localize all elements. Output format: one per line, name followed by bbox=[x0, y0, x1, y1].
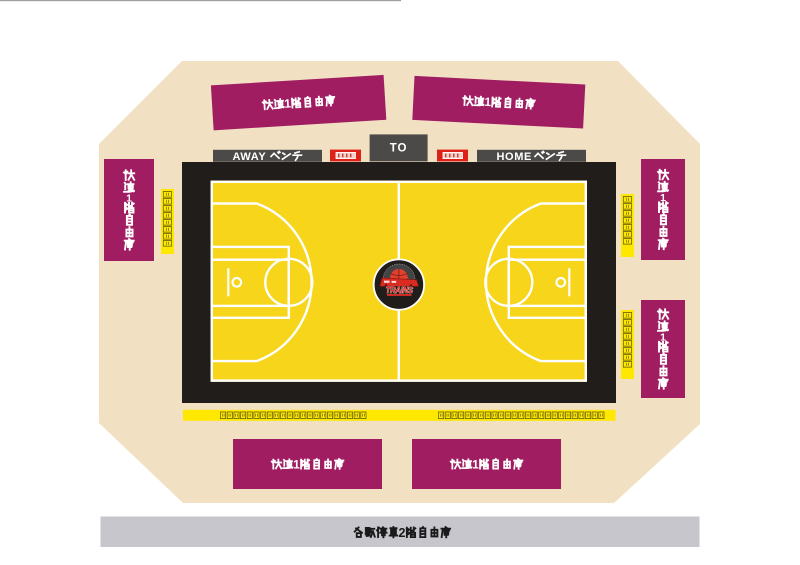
svg-text:TRAINS: TRAINS bbox=[386, 286, 414, 295]
svg-text:TO: TO bbox=[390, 143, 408, 155]
